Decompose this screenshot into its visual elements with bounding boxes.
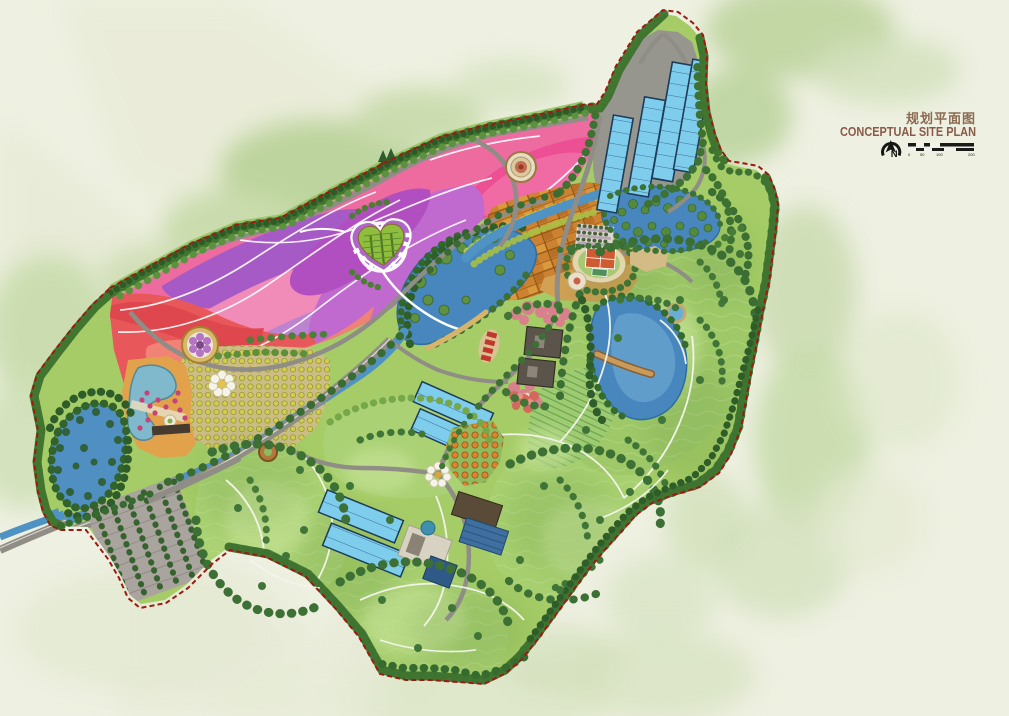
- svg-text:N: N: [891, 149, 898, 160]
- svg-text:50: 50: [920, 152, 925, 157]
- svg-text:100: 100: [936, 152, 943, 157]
- svg-text:CONCEPTUAL SITE PLAN: CONCEPTUAL SITE PLAN: [840, 124, 976, 139]
- svg-text:200: 200: [968, 152, 975, 157]
